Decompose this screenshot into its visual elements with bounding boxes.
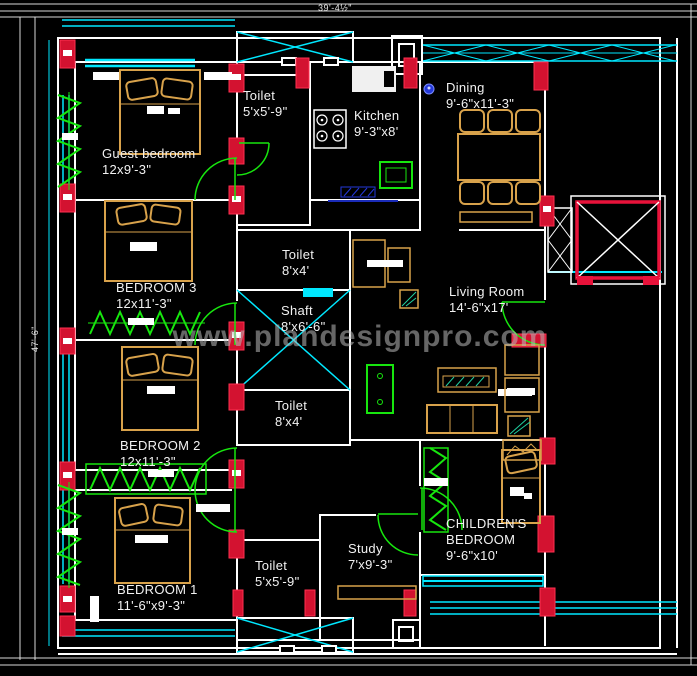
floor-plan-drawing	[0, 0, 697, 676]
bed-guest	[120, 70, 200, 154]
bed-bedroom3	[105, 201, 192, 281]
bed-bedroom1	[115, 498, 190, 583]
bed-bedroom2	[122, 347, 198, 430]
dresser	[353, 240, 418, 308]
columns	[60, 40, 555, 636]
bed-children	[502, 450, 540, 523]
duct-boxes	[237, 32, 422, 653]
windows	[49, 20, 677, 646]
dimension-lines	[0, 4, 697, 665]
blue-marker-icon	[424, 84, 434, 94]
wall-unit	[503, 345, 541, 460]
kitchen-sink	[380, 162, 412, 188]
floor-plan-canvas: Guest bedroom 12x9'-3" Toilet 5'x5'-9" K…	[0, 0, 697, 676]
shaft-cross	[237, 288, 350, 390]
coffee-table	[367, 365, 393, 413]
dining-table	[458, 110, 540, 222]
sofa	[427, 405, 497, 433]
kitchen-fixtures	[314, 66, 412, 201]
